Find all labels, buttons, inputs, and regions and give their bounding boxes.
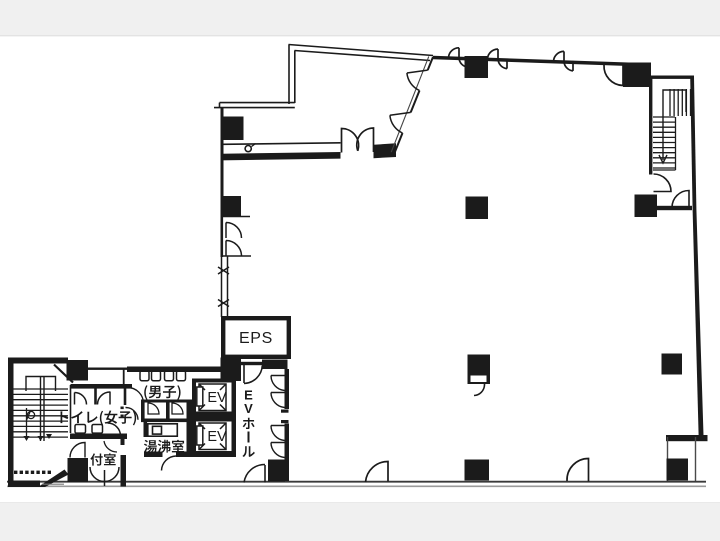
svg-text:V: V <box>244 401 253 416</box>
svg-text:EPS: EPS <box>239 330 273 347</box>
svg-text:EV: EV <box>207 429 227 445</box>
svg-text:EV: EV <box>207 390 227 406</box>
